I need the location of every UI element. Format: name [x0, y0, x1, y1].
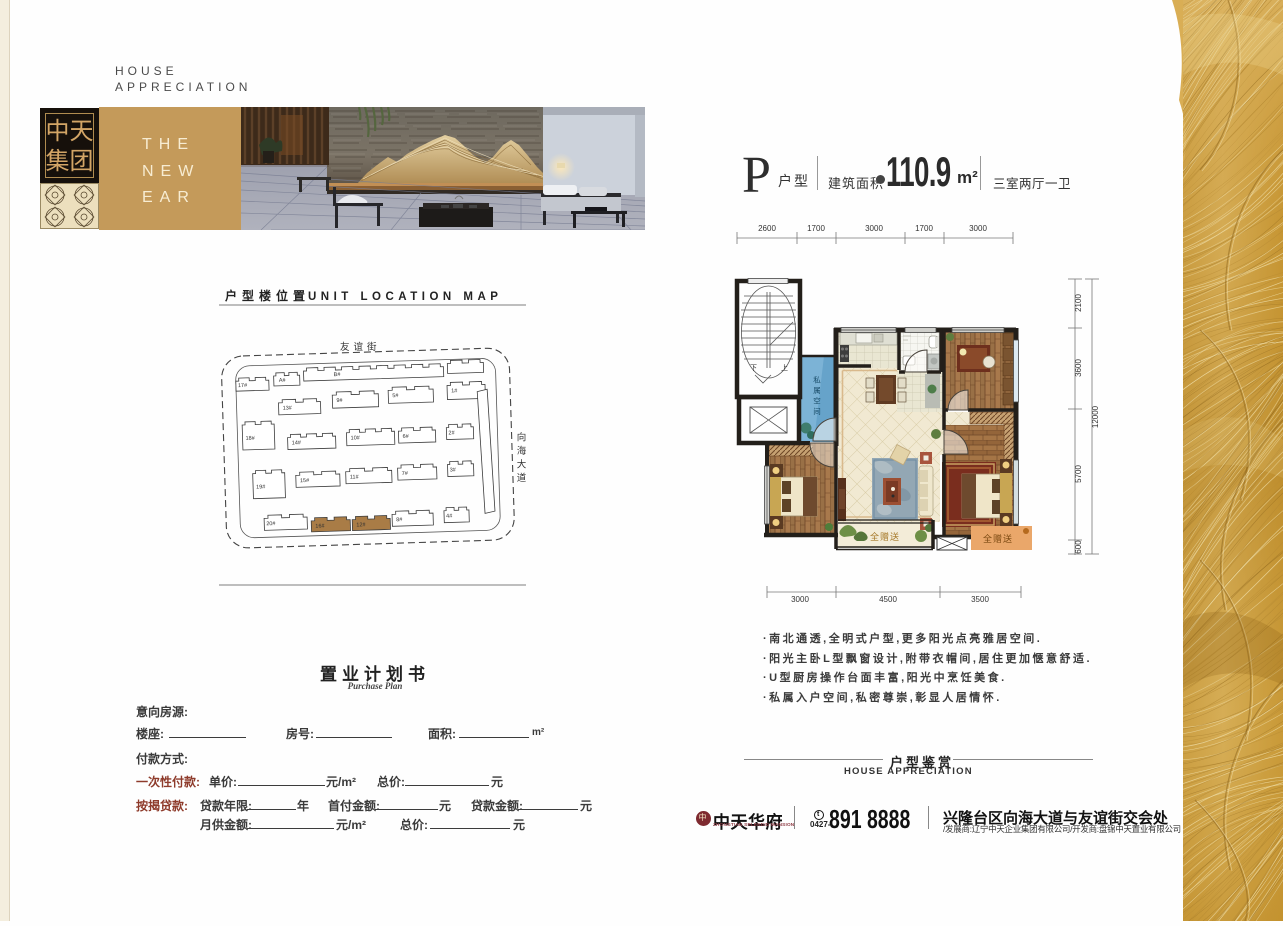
svg-text:向海大道: 向海大道 [515, 431, 527, 486]
svg-text:户型楼位置: 户型楼位置 [225, 288, 310, 303]
svg-text:B#: B# [334, 372, 342, 378]
svg-text:12#: 12# [356, 522, 366, 528]
svg-text:A#: A# [279, 378, 287, 384]
svg-text:11#: 11# [350, 474, 360, 480]
svg-text:12000: 12000 [1091, 405, 1100, 428]
svg-text:20#: 20# [266, 521, 276, 527]
svg-text:14#: 14# [292, 440, 302, 446]
svg-text:17#: 17# [238, 383, 248, 389]
svg-text:3000: 3000 [969, 224, 987, 233]
svg-text:3000: 3000 [865, 224, 883, 233]
svg-text:5700: 5700 [1074, 465, 1083, 483]
svg-text:15#: 15# [300, 478, 310, 484]
svg-text:全赠送: 全赠送 [983, 533, 1013, 544]
svg-text:全赠送: 全赠送 [870, 531, 900, 542]
svg-text:19#: 19# [256, 484, 266, 490]
svg-text:上: 上 [781, 363, 788, 372]
svg-text:下: 下 [750, 364, 757, 372]
svg-text:3500: 3500 [971, 595, 989, 604]
svg-text:2100: 2100 [1074, 294, 1083, 312]
svg-text:1700: 1700 [915, 224, 933, 233]
svg-text:私属空间: 私属空间 [812, 376, 821, 418]
svg-text:13#: 13# [283, 405, 293, 411]
svg-text:600: 600 [1074, 540, 1083, 554]
svg-text:3000: 3000 [791, 595, 809, 604]
svg-text:1700: 1700 [807, 224, 825, 233]
svg-text:10#: 10# [351, 435, 361, 441]
svg-text:2600: 2600 [758, 224, 776, 233]
svg-text:3600: 3600 [1074, 359, 1083, 377]
svg-text:18#: 18# [245, 436, 255, 442]
svg-text:16#: 16# [315, 523, 325, 529]
svg-text:UNIT LOCATION MAP: UNIT LOCATION MAP [308, 291, 502, 303]
svg-text:4500: 4500 [879, 595, 897, 604]
svg-text:友谊街: 友谊街 [340, 341, 381, 353]
